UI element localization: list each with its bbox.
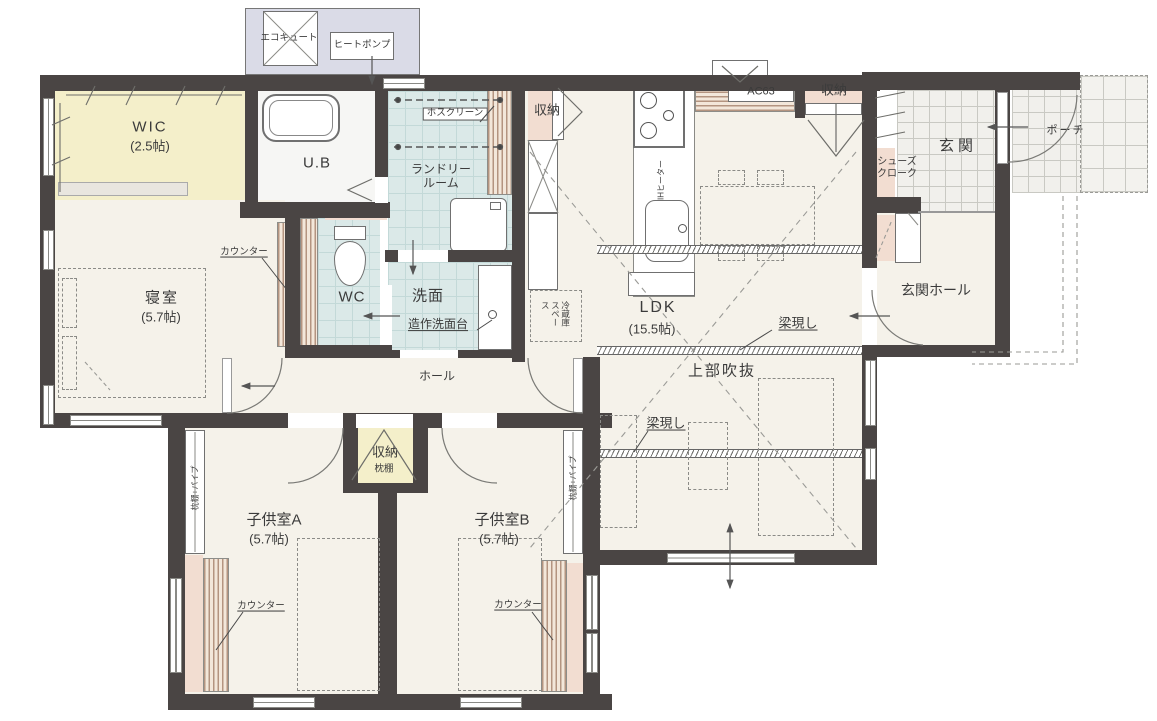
window [43, 230, 54, 270]
label-genkan: 玄関 [939, 137, 977, 154]
window [383, 78, 425, 89]
burner-3 [640, 122, 657, 139]
toilet-tank [334, 226, 366, 240]
label-ecocute: エコキュート [260, 34, 317, 45]
storage-opening [356, 414, 413, 428]
kitchen-counter-end [628, 272, 695, 296]
window [70, 415, 162, 426]
dining-chair [757, 170, 784, 185]
door-opening-senmen [400, 350, 458, 358]
door-opening-wc [380, 285, 392, 345]
label-wic: WIC [132, 118, 167, 135]
wall [862, 345, 1010, 357]
pantry-lower [528, 213, 558, 290]
bed-pillow [62, 336, 77, 390]
wall [285, 213, 300, 358]
label-ac63: AC63 [747, 86, 775, 99]
label-bedroom: 寝室 [145, 289, 179, 306]
child-b-counter [541, 560, 567, 692]
label-vanity: 造作洗面台 [408, 318, 468, 332]
bedroom-door-leaf [222, 358, 232, 413]
label-child-a-size: (5.7帖) [249, 533, 289, 548]
label-child-b: 子供室B [474, 511, 529, 528]
sofa [758, 378, 834, 536]
label-genkan-hall: 玄関ホール [901, 282, 971, 298]
wall [512, 75, 525, 362]
laundry-counter [487, 82, 512, 195]
label-shoes-cloak: シューズクローク [873, 157, 921, 180]
label-ub: U.B [303, 154, 331, 171]
burner-1 [640, 92, 657, 109]
label-senmen: 洗面 [412, 287, 444, 304]
door-opening-child-a [288, 413, 343, 428]
hall-closet [895, 213, 921, 263]
bed-child-a [297, 538, 380, 691]
wall [285, 345, 392, 358]
window-sliding-door [667, 553, 795, 563]
label-porch: ポーチ [1047, 125, 1086, 138]
dining-chair [718, 170, 745, 185]
wall [40, 75, 512, 91]
vanity-unit [478, 265, 512, 350]
tv-board [688, 422, 728, 490]
label-laundry-room: ランドリールーム [407, 163, 475, 191]
entry-storage-shelf [805, 103, 862, 115]
faucet [678, 224, 687, 233]
window [586, 633, 598, 673]
child-a-counter [203, 558, 229, 692]
label-ldk-size: (15.5帖) [629, 323, 676, 338]
window [43, 385, 54, 425]
plant-shelf [600, 415, 637, 528]
label-hall: ホール [419, 370, 455, 384]
label-wc: WC [339, 288, 366, 305]
wall [877, 72, 1080, 90]
window [170, 578, 182, 673]
window [253, 697, 315, 708]
label-pipe-shelf-b: 枕棚+パイプ [568, 456, 577, 501]
pantry-upper [528, 140, 558, 213]
exposed-beam [597, 346, 862, 355]
label-bedroom-size: (5.7帖) [141, 311, 181, 326]
door-opening-child-b [442, 413, 497, 428]
label-fridge-space: 冷蔵庫スペース [540, 301, 571, 331]
window [43, 98, 54, 176]
label-counter-child-a: カウンター [237, 602, 285, 613]
door-opening-senmen-top [398, 250, 448, 262]
window [460, 697, 522, 708]
wic-shelf [58, 182, 188, 196]
label-storage-hall: 収納 [372, 446, 398, 461]
label-ldk: LDK [639, 299, 676, 317]
label-counter-bedroom: カウンター [220, 248, 268, 259]
label-heatpump: ヒートポンプ [334, 41, 391, 52]
room-hall [222, 358, 583, 413]
wall [343, 483, 428, 493]
bed-child-b [458, 538, 542, 691]
label-storage-entry: 収納 [821, 84, 847, 99]
wc-cabinet [300, 218, 318, 348]
wall [378, 483, 397, 694]
label-makura-shelf: 枕棚 [374, 465, 393, 476]
dining-chair [757, 246, 784, 261]
hall-ldk-door-leaf [573, 358, 583, 413]
wall [343, 420, 358, 490]
label-void-above: 上部吹抜 [688, 362, 756, 379]
label-beam-1: 梁現し [778, 317, 817, 332]
label-beam-2: 梁現し [646, 417, 685, 432]
wall [875, 197, 921, 213]
bed-pillow [62, 278, 77, 328]
window [865, 448, 876, 480]
label-ih-heater: IHヒーター [656, 160, 665, 200]
wall [795, 83, 805, 118]
dining-table [700, 186, 815, 245]
window [865, 360, 876, 426]
dining-chair [718, 246, 745, 261]
door-opening-ub [375, 177, 388, 203]
burner-2 [663, 110, 674, 121]
wall [240, 202, 390, 218]
label-counter-child-b: カウンター [494, 601, 542, 612]
window [586, 575, 598, 630]
front-door-leaf [997, 92, 1008, 164]
wall [413, 420, 428, 490]
vanity-faucet [488, 310, 497, 319]
child-a-desk-pink [185, 555, 203, 692]
label-child-a: 子供室A [246, 511, 301, 528]
floor-plan: エコキュート ヒートポンプ WIC (2.5帖) U.B ホスクリーン ランドリ… [0, 0, 1157, 721]
label-wic-size: (2.5帖) [130, 140, 170, 155]
wall [168, 694, 612, 710]
wall [245, 90, 258, 213]
label-pipe-shelf-a: 枕棚+パイプ [190, 466, 199, 511]
label-hosclean: ホスクリーン [423, 108, 488, 121]
door-opening-genkan-hall [862, 268, 877, 345]
washer-valve [490, 202, 501, 210]
label-storage-kitchen: 収納 [534, 104, 560, 119]
bed-bedroom [58, 268, 206, 398]
bathtub-inner [269, 100, 333, 136]
porch-extension [1080, 75, 1148, 193]
label-child-b-size: (5.7帖) [479, 533, 519, 548]
